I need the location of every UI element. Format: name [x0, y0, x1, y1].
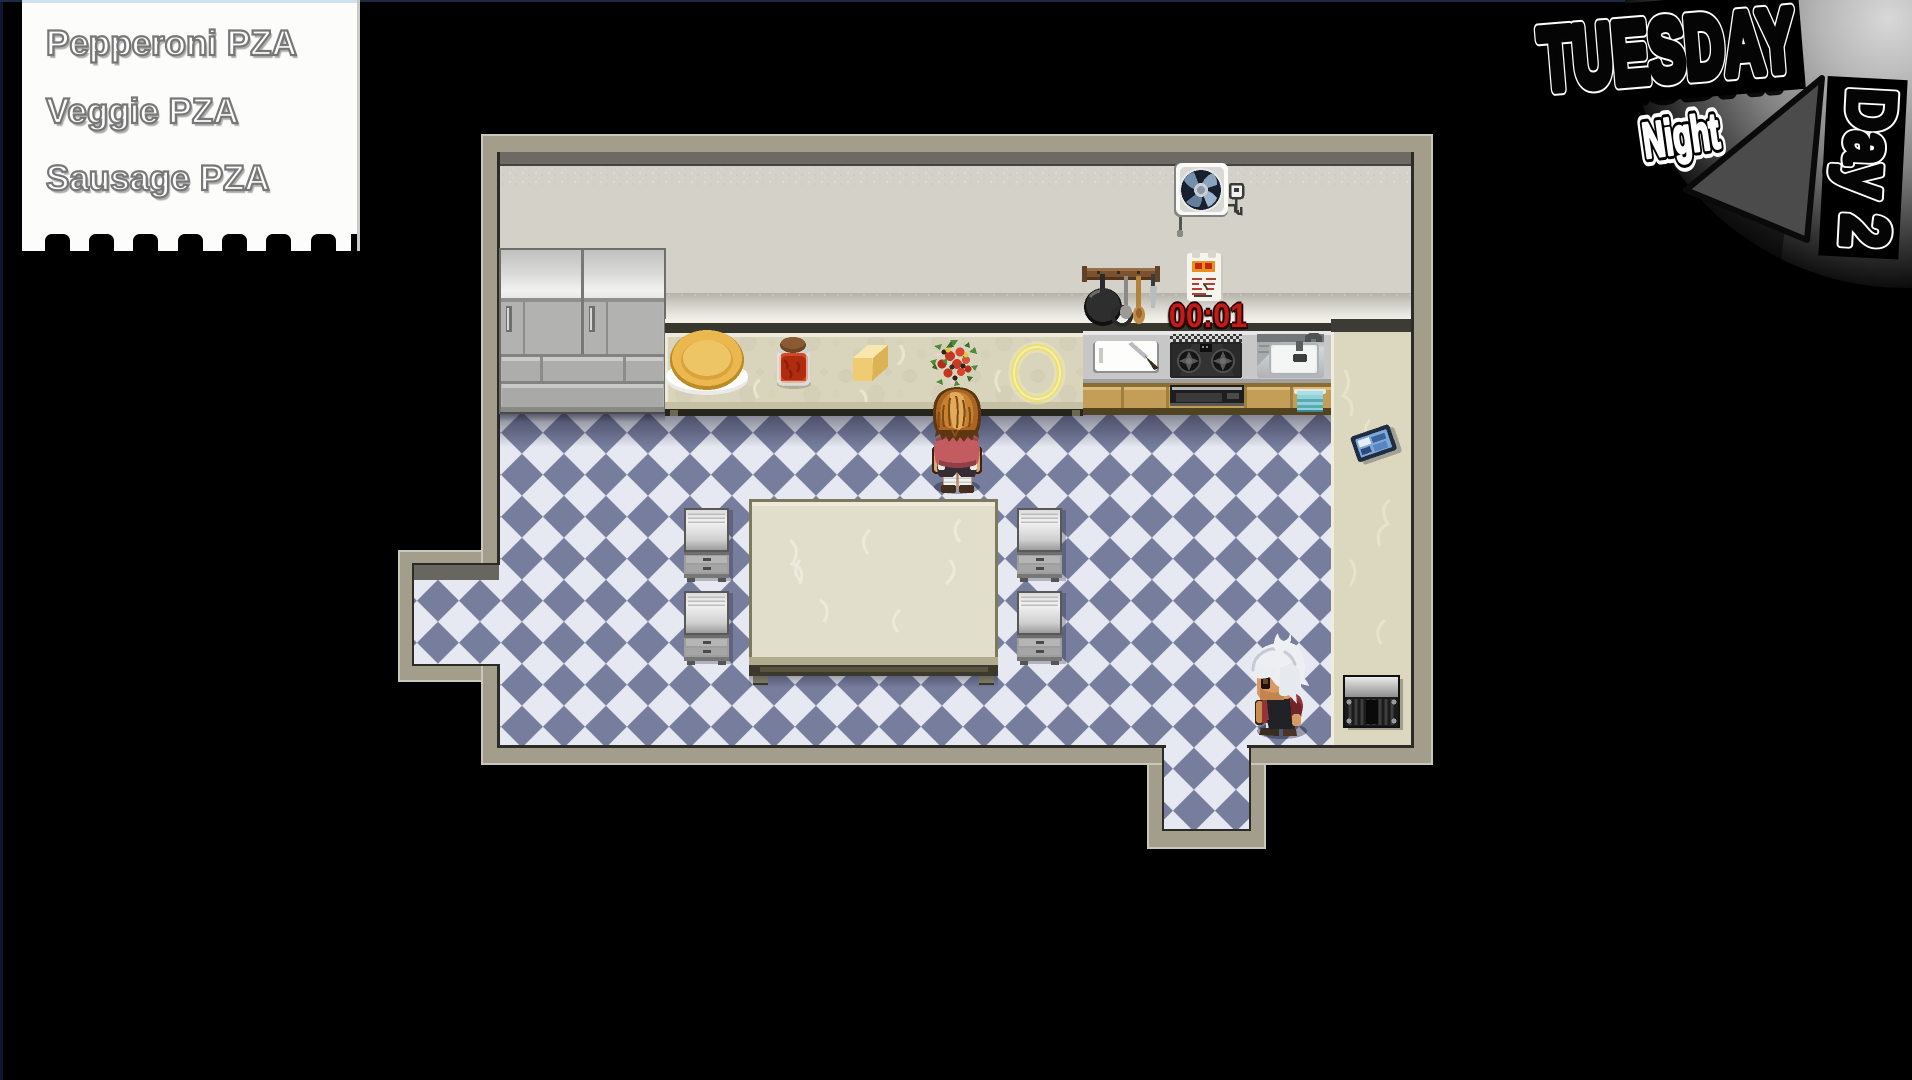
- svg-text:Night: Night: [1639, 103, 1723, 169]
- svg-text:Day 2: Day 2: [1826, 86, 1911, 249]
